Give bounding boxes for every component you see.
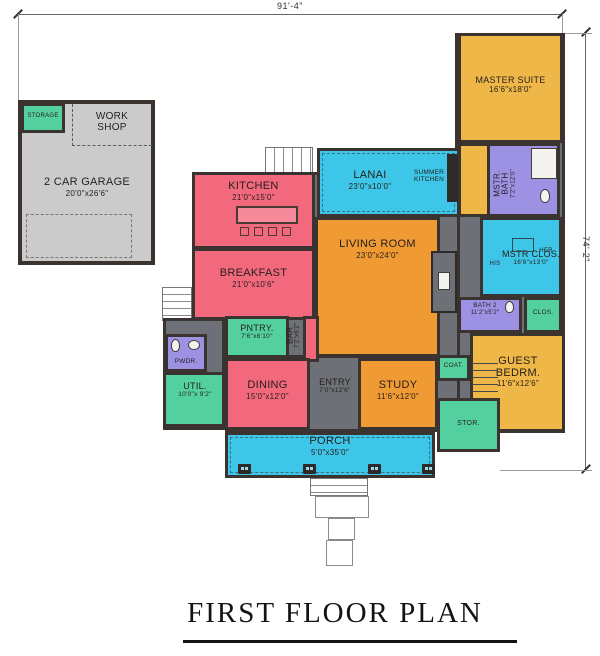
- fireplace-hearth: [438, 272, 450, 290]
- extension-line: [562, 14, 563, 33]
- kitchen-stool: [282, 227, 291, 236]
- bar-dims: 7'2"x6'2": [295, 313, 301, 357]
- room-powder: [165, 334, 207, 372]
- room-storage-closet-label: STOR.: [439, 420, 498, 427]
- kitchen-island: [236, 206, 298, 224]
- extension-line: [563, 33, 592, 34]
- room-storage-label: STORAGE: [22, 113, 64, 119]
- kitchen-stool: [254, 227, 263, 236]
- room-master-bath-label: MSTR. BATH 7'2"x12'0": [493, 164, 516, 204]
- extension-line: [500, 470, 592, 471]
- walkway-segment: [315, 496, 369, 518]
- sink-icon: [188, 340, 200, 350]
- room-powder-label: PWDR.: [166, 359, 206, 366]
- room-living-label: LIVING ROOM 23'0"x24'0": [320, 239, 435, 260]
- front-steps: [310, 478, 368, 496]
- walkway-segment: [328, 518, 355, 540]
- room-bath2-label: BATH 2 11'2"x5'2": [460, 303, 510, 316]
- room-workshop-label: WORK SHOP: [80, 112, 144, 133]
- porch-dims: 5'0"x35'0": [280, 449, 380, 457]
- breakfast-name: BREAKFAST: [197, 268, 310, 280]
- bar-counter: [303, 316, 319, 362]
- room-coat-label: COAT.: [438, 363, 469, 370]
- garage-dims: 20'0"x26'6": [25, 190, 149, 198]
- side-entry-steps: [162, 287, 192, 321]
- kitchen-stool: [268, 227, 277, 236]
- closet-island: [512, 238, 534, 252]
- room-breakfast-label: BREAKFAST 21'0"x10'6": [197, 268, 310, 289]
- dining-name: DINING: [227, 380, 308, 392]
- porch-name: PORCH: [280, 436, 380, 448]
- room-dining-label: DINING 15'0"x12'0": [227, 380, 308, 401]
- her-label: HER: [536, 248, 556, 254]
- master-name: MASTER SUITE: [462, 76, 559, 85]
- room-master-label: MASTER SUITE 16'6"x18'0": [462, 76, 559, 95]
- dimension-right-label: 74'-2": [581, 229, 591, 269]
- porch-column: [422, 464, 435, 474]
- garage-ceiling-dashed: [26, 214, 132, 258]
- master-vestibule: [458, 143, 490, 217]
- lanai-dims: 23'0"x10'0": [325, 183, 415, 191]
- room-kitchen-label: KITCHEN 21'0"x15'0": [197, 181, 310, 202]
- master-bath-dims: 7'2"x12'0": [510, 164, 516, 204]
- kitchen-dims: 21'0"x15'0": [197, 194, 310, 202]
- room-pantry-label: PNTRY. 7'6"x6'10": [227, 324, 287, 341]
- bath2-dims: 11'2"x5'2": [460, 310, 510, 316]
- toilet-icon: [171, 339, 180, 352]
- breakfast-dims: 21'0"x10'6": [197, 281, 310, 289]
- room-entry-label: ENTRY 7'0"x12'6": [311, 378, 359, 395]
- bath2-name: BATH 2: [460, 303, 510, 310]
- master-closet-dims: 16'6"x13'0": [502, 260, 560, 267]
- summer-kitchen-label: SUMMER KITCHEN: [408, 170, 450, 184]
- study-name: STUDY: [360, 380, 436, 392]
- extension-line: [18, 14, 19, 100]
- entry-name: ENTRY: [311, 378, 359, 387]
- his-label: HIS: [485, 261, 505, 267]
- lanai-name: LANAI: [325, 170, 415, 182]
- entry-dims: 7'0"x12'6": [311, 388, 359, 395]
- title-underline: [183, 640, 517, 643]
- utility-dims: 10'0"x 9'2": [170, 392, 220, 399]
- study-dims: 11'6"x12'0": [360, 393, 436, 401]
- toilet-icon: [540, 189, 550, 203]
- room-study-label: STUDY 11'6"x12'0": [360, 380, 436, 401]
- porch-column: [368, 464, 381, 474]
- living-dims: 23'0"x24'0": [320, 252, 435, 260]
- bar-name: BAR: [287, 313, 295, 357]
- master-dims: 16'6"x18'0": [462, 86, 559, 94]
- plan-title: FIRST FLOOR PLAN: [150, 597, 520, 630]
- dimension-tick: [581, 27, 591, 37]
- room-lanai-label: LANAI 23'0"x10'0": [325, 170, 415, 191]
- kitchen-name: KITCHEN: [197, 181, 310, 193]
- room-porch-label: PORCH 5'0"x35'0": [280, 436, 380, 457]
- dining-dims: 15'0"x12'0": [227, 393, 308, 401]
- porch-column: [303, 464, 316, 474]
- pantry-dims: 7'6"x6'10": [227, 334, 287, 341]
- garage-name: 2 CAR GARAGE: [25, 177, 149, 189]
- summer-kitchen-appliances: [447, 154, 458, 202]
- master-bath-name: MSTR. BATH: [493, 164, 510, 204]
- room-utility-label: UTIL. 10'0"x 9'2": [170, 382, 220, 399]
- room-bar-label: BAR 7'2"x6'2": [287, 313, 302, 357]
- toilet-icon: [505, 301, 514, 313]
- dimension-top-label: 91'-4": [240, 1, 340, 11]
- dimension-line-top: [18, 14, 562, 15]
- pantry-name: PNTRY.: [227, 324, 287, 333]
- shower-stall: [531, 148, 557, 179]
- floor-plan: 91'-4" 74'-2" WORK SHOP STORAGE 2 CAR GA…: [0, 0, 600, 656]
- room-garage-label: 2 CAR GARAGE 20'0"x26'6": [25, 177, 149, 198]
- room-closet-label: CLOS.: [525, 310, 561, 317]
- kitchen-stool: [240, 227, 249, 236]
- rear-steps: [265, 147, 313, 173]
- living-name: LIVING ROOM: [320, 239, 435, 251]
- dimension-tick: [581, 464, 591, 474]
- walkway-segment: [326, 540, 353, 566]
- utility-name: UTIL.: [170, 382, 220, 391]
- porch-column: [238, 464, 251, 474]
